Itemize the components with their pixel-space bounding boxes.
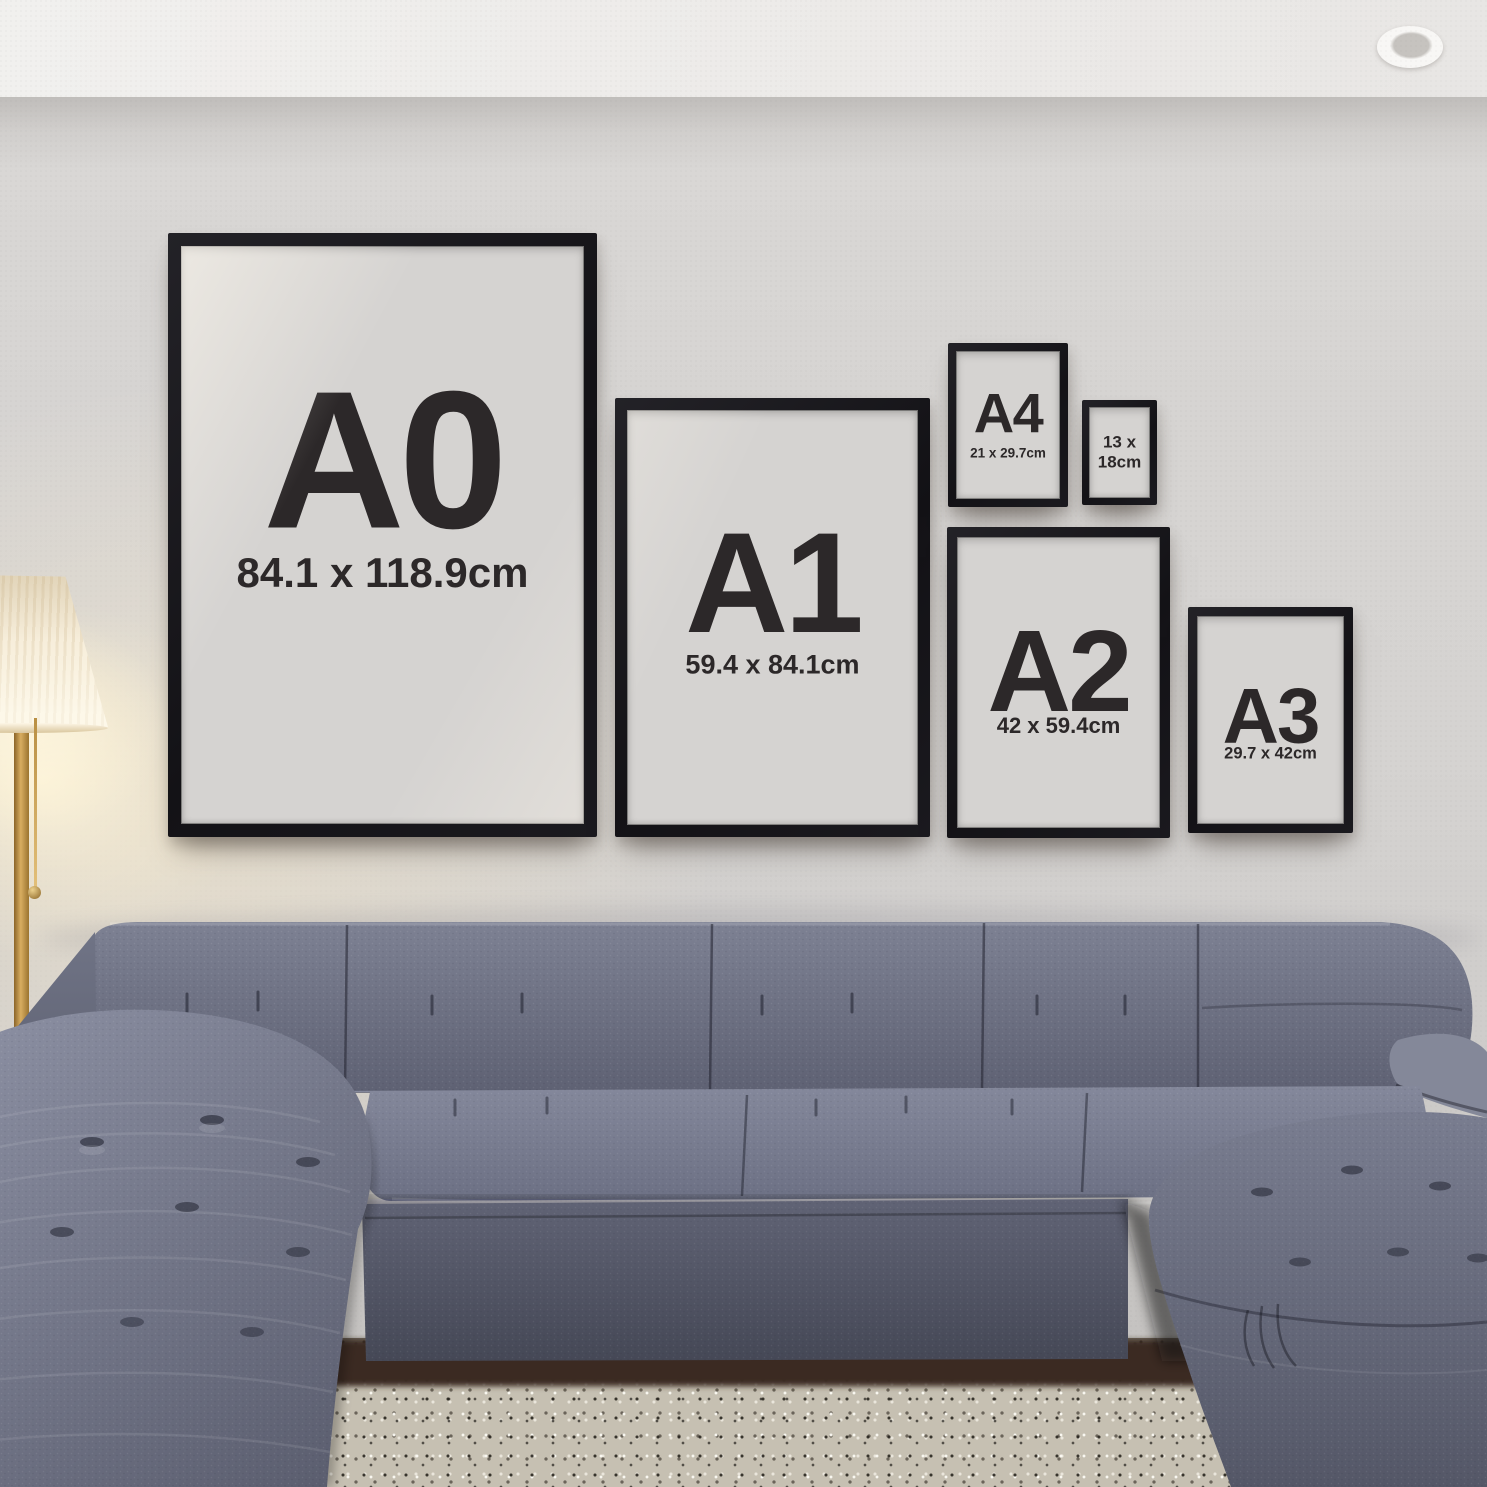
shag-rug [130,1338,1345,1487]
dimensions-13x18: 13 x 18cm [1089,432,1150,473]
recessed-downlight-icon [1377,26,1443,68]
poster-a3: A3 29.7 x 42cm [1197,616,1344,824]
dimensions-a3: 29.7 x 42cm [1197,745,1344,764]
dimensions-13x18-line2: 18cm [1089,453,1150,473]
lamp-pull-chain [34,718,37,890]
ceiling-wall-shadow [0,97,1487,175]
ceiling [0,0,1487,97]
lamp-stem-ring [11,1082,32,1098]
sofa-right-arm-pillow [1389,1034,1487,1118]
poster-frame-a2: A2 42 x 59.4cm [947,527,1170,838]
size-label-a1: A1 [627,502,918,666]
poster-frame-a3: A3 29.7 x 42cm [1188,607,1353,833]
dimensions-a2: 42 x 59.4cm [957,713,1160,739]
poster-frame-a1: A1 59.4 x 84.1cm [615,398,930,837]
lamp-stem [14,729,29,1059]
size-label-a0: A0 [181,347,584,572]
poster-13x18: 13 x 18cm [1089,407,1150,498]
module-gap-shadow-right [1122,1200,1194,1361]
poster-frame-13x18: 13 x 18cm [1082,400,1157,505]
poster-frame-a4: A4 21 x 29.7cm [948,343,1068,507]
lamp-pull-chain-ball [28,886,41,899]
poster-a4: A4 21 x 29.7cm [956,351,1060,499]
poster-a1: A1 59.4 x 84.1cm [627,410,918,825]
dimensions-a4: 21 x 29.7cm [956,446,1060,461]
dimensions-13x18-line1: 13 x [1089,432,1150,452]
dimensions-a1: 59.4 x 84.1cm [627,650,918,681]
poster-a2: A2 42 x 59.4cm [957,537,1160,828]
size-label-a4: A4 [956,381,1060,446]
living-room-scene: A0 84.1 x 118.9cm A1 59.4 x 84.1cm A4 21… [0,0,1487,1487]
